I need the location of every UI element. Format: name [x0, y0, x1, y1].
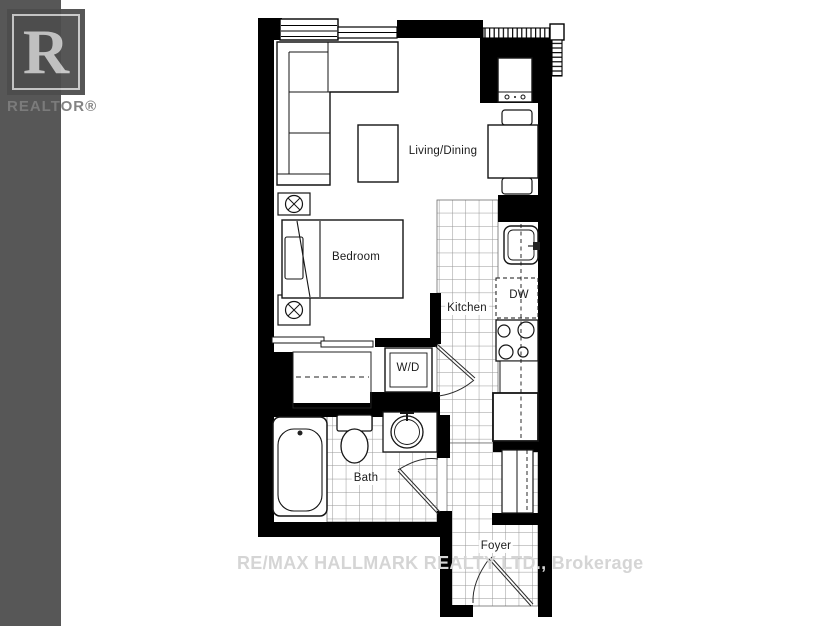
realtor-logo-box: R — [7, 9, 85, 95]
room-label-bath: Bath — [352, 472, 380, 485]
room-label-living-dining: Living/Dining — [409, 145, 477, 157]
dining-chair-top — [502, 110, 532, 125]
dining-chair-bottom — [502, 178, 532, 194]
sliding-door-panel — [321, 341, 373, 347]
appliance-label-dishwasher: DW — [509, 289, 529, 301]
dining-set — [488, 110, 538, 194]
realtor-logo: R REALTOR® — [7, 9, 97, 115]
room-label-foyer: Foyer — [479, 540, 513, 553]
appliance-label-washer-dryer: W/D — [397, 362, 420, 374]
window-hatched-right — [552, 40, 562, 76]
foyer-closet — [502, 450, 533, 513]
faucet-icon — [533, 242, 540, 250]
bathtub — [273, 417, 327, 516]
kitchen-counter — [493, 224, 540, 441]
tub-faucet-icon — [298, 431, 303, 436]
stove — [496, 320, 538, 361]
sliding-door-panel — [272, 337, 324, 343]
window-corner-post — [550, 24, 564, 40]
counter-section — [500, 361, 538, 393]
realtor-r-icon: R — [7, 9, 85, 95]
kitchen-tile-floor — [437, 200, 498, 443]
room-label-kitchen: Kitchen — [445, 302, 489, 315]
nightstand-lamp-top — [278, 193, 310, 215]
fridge — [493, 393, 538, 441]
realtor-logo-label: REALTOR® — [7, 98, 97, 115]
hvac-unit — [498, 58, 532, 102]
room-label-bedroom: Bedroom — [332, 251, 380, 263]
coffee-table — [358, 125, 398, 182]
window-hatched-top — [483, 28, 552, 38]
dining-table — [488, 125, 538, 178]
floorplan-svg — [0, 0, 822, 626]
bathroom-sink — [383, 412, 437, 452]
brokerage-watermark: RE/MAX HALLMARK REALTY LTD., Brokerage — [237, 553, 643, 574]
nightstand-lamp-bottom — [278, 295, 310, 325]
